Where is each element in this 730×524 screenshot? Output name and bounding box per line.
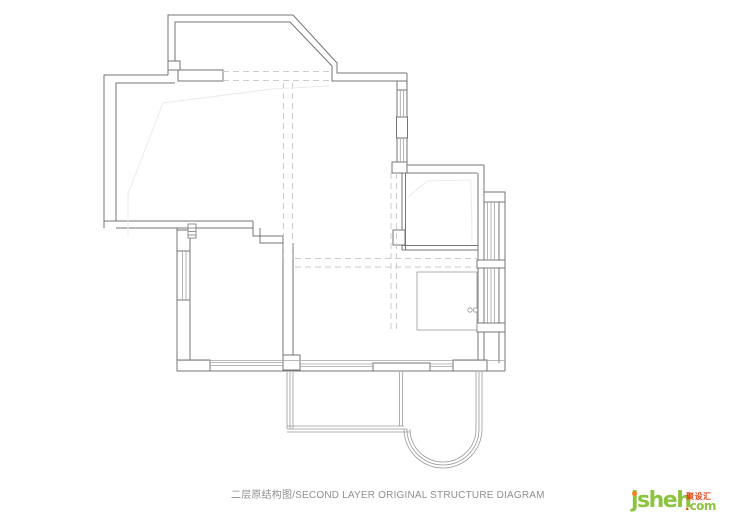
balcony-railing: [287, 372, 482, 468]
page: 二层原结构图/SECOND LAYER ORIGINAL STRUCTURE D…: [0, 0, 730, 524]
site-logo: jsheh 聚设汇 .com: [631, 490, 730, 522]
dashed-beam-lines: [223, 72, 478, 331]
logo-j-dot-icon: [632, 491, 637, 496]
drawing-caption: 二层原结构图/SECOND LAYER ORIGINAL STRUCTURE D…: [231, 486, 571, 501]
door-hinge-symbol: [188, 224, 196, 238]
small-room-outline: [417, 272, 478, 330]
logo-wordmark: jsheh: [631, 488, 690, 513]
logo-domain: .com: [685, 499, 716, 513]
logo-domain-tld: com: [690, 499, 716, 513]
floor-plan: [0, 0, 730, 524]
wall-blocks: [168, 61, 505, 371]
exterior-walls: [104, 15, 505, 371]
